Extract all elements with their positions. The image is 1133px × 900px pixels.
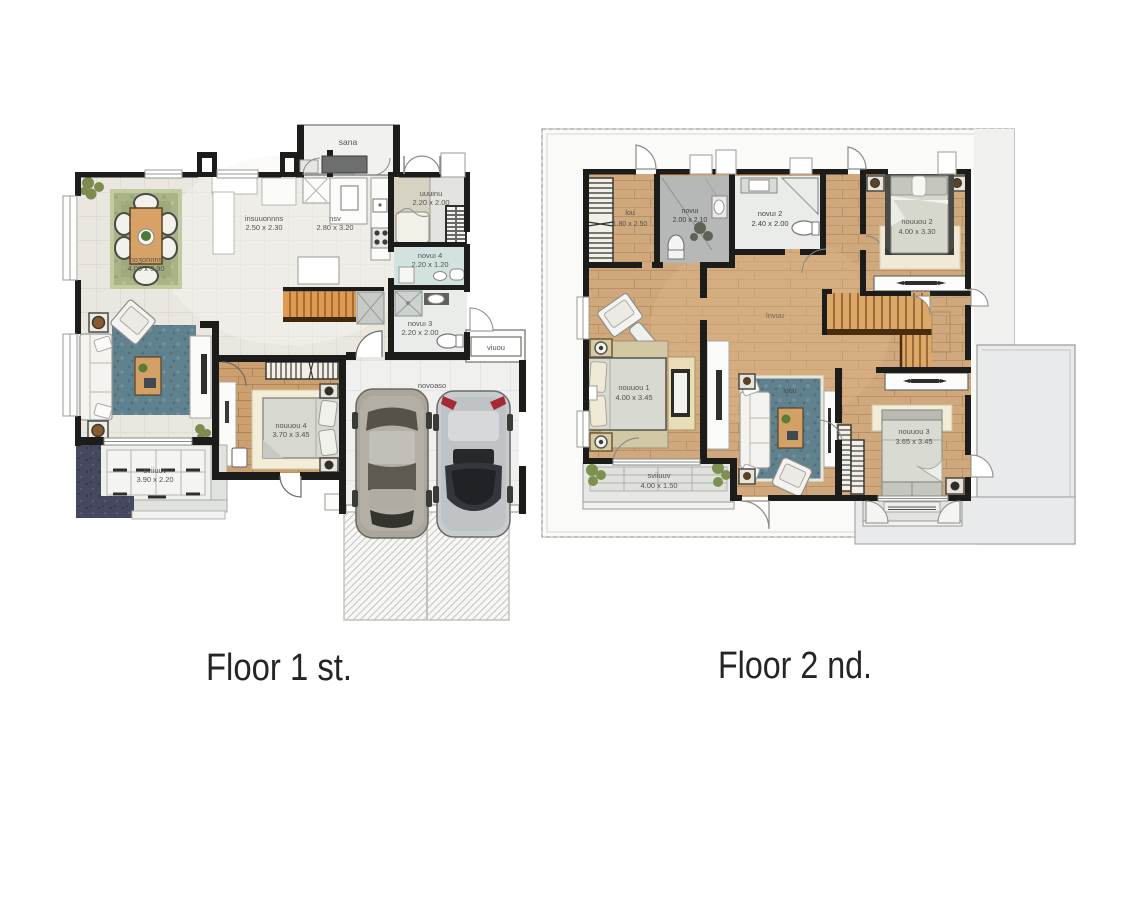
svg-text:novuı 2: novuı 2 [758,209,783,218]
svg-text:nouuou 4: nouuou 4 [275,421,306,430]
svg-text:uuuinu: uuuinu [420,189,443,198]
svg-text:3.70 x 3.45: 3.70 x 3.45 [272,430,309,439]
svg-text:novoaso: novoaso [418,381,446,390]
svg-text:nouuou 3: nouuou 3 [898,427,929,436]
svg-text:lou: lou [625,210,634,217]
svg-text:nouuou 2: nouuou 2 [901,217,932,226]
svg-text:nsv: nsv [329,214,341,223]
svg-text:louu: louu [783,388,796,395]
svg-text:novuı 3: novuı 3 [408,319,433,328]
svg-text:lnvuu: lnvuu [766,311,784,320]
svg-text:4.00 x 1.50: 4.00 x 1.50 [640,481,677,490]
svg-text:novuı 4: novuı 4 [418,251,443,260]
svg-text:2.40 x 2.00: 2.40 x 2.00 [751,219,788,228]
svg-text:sviiuuv: sviiuuv [648,471,671,480]
svg-text:nouuou 1: nouuou 1 [618,383,649,392]
svg-text:2.00 x 2.10: 2.00 x 2.10 [673,217,708,224]
svg-text:sviiuuv: sviiuuv [144,466,167,475]
svg-text:viuou: viuou [487,343,505,352]
svg-text:2.20 x 2.00: 2.20 x 2.00 [412,198,449,207]
svg-text:insuuonnns: insuuonnns [245,214,284,223]
svg-text:2.20 x 1.20: 2.20 x 1.20 [411,260,448,269]
svg-text:1.80 x 2.50: 1.80 x 2.50 [613,221,648,228]
svg-text:3.90 x 2.20: 3.90 x 2.20 [136,475,173,484]
svg-text:Floor 2 nd.: Floor 2 nd. [718,645,872,687]
svg-text:novuı: novuı [681,208,698,215]
svg-text:sana: sana [339,137,358,147]
svg-text:2.80 x 3.20: 2.80 x 3.20 [316,223,353,232]
svg-text:Floor 1 st.: Floor 1 st. [206,647,352,689]
svg-text:3.65 x 3.45: 3.65 x 3.45 [895,437,932,446]
svg-text:2.50 x 2.30: 2.50 x 2.30 [245,223,282,232]
svg-text:noʒonnns: noʒonnns [130,255,163,264]
svg-text:4.00 x 3.30: 4.00 x 3.30 [898,227,935,236]
svg-text:4.00 x 3.90: 4.00 x 3.90 [127,264,164,273]
svg-text:2.20 x 2.00: 2.20 x 2.00 [401,328,438,337]
svg-text:4.00 x 3.45: 4.00 x 3.45 [615,393,652,402]
